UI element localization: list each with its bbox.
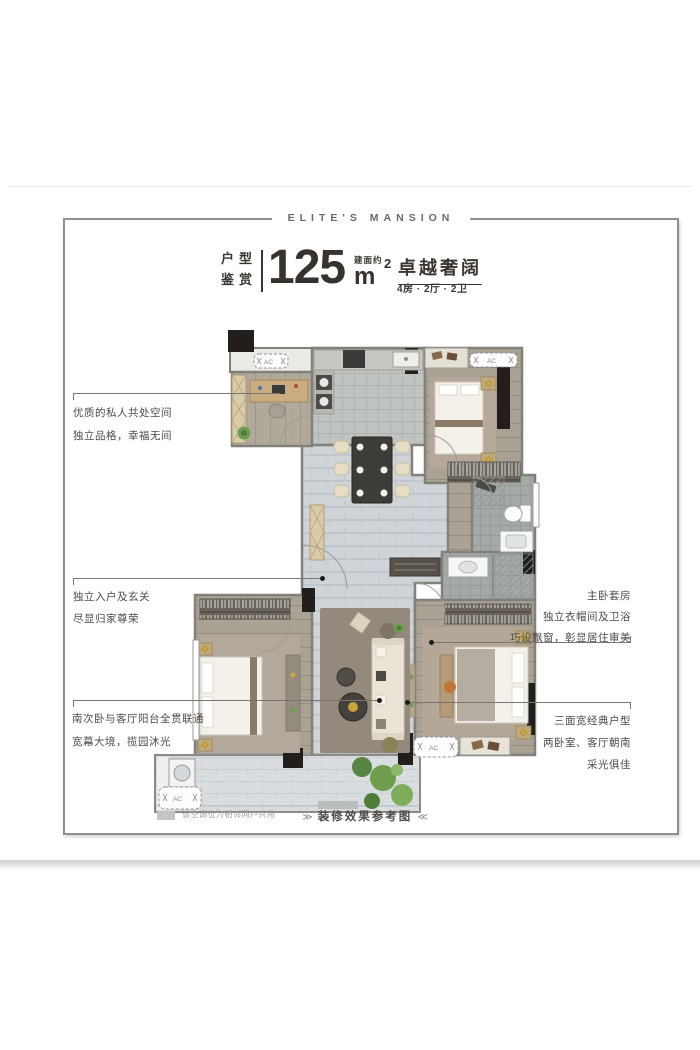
annotation-private-space: 优质的私人共处空间 独立品格，幸福无间 [73,402,172,448]
room-spec: 4房 · 2厅 · 2卫 [397,280,485,295]
area-superscript: 2 [384,256,391,271]
leader-tick-1 [73,393,74,400]
caption-text: 装修效果参考图 [318,811,413,823]
area-unit-stack: 建面约 m [354,254,388,287]
category-label: 户型 鉴赏 [221,248,257,290]
leader-line-1 [73,393,280,394]
legend-swatch [157,811,175,820]
leader-dot-3 [377,698,382,703]
leader-line-5 [408,702,631,703]
leader-dot-2 [320,576,325,581]
annotation-entry: 独立入户及玄关 尽显归家尊荣 [73,586,150,630]
caption-left-chevron: ≫ [302,812,312,823]
ac-unit-study: AC [254,354,288,368]
top-divider-line [8,186,692,187]
living-room [320,608,410,753]
svg-text:AC: AC [487,358,496,365]
leader-tick-2 [73,578,74,585]
render-caption: ≫ 装修效果参考图 ≪ [275,808,455,824]
header-divider [261,250,263,292]
category-line1: 户型 [221,248,257,269]
ac-unit-shared: AC [159,787,201,809]
brand-title: ELITE'S MANSION [272,212,471,224]
ac-unit-north: AC [470,353,517,367]
svg-text:AC: AC [264,359,273,366]
page: { "brand": "ELITE'S MANSION", "header": … [0,0,700,1050]
leader-tick-3 [73,700,74,707]
svg-text:AC: AC [173,796,182,803]
leader-dot-5 [405,700,410,705]
annotation-master-suite: 主卧套房 独立衣帽间及卫浴 巧设飘窗，彰显居住审美 [401,586,631,649]
area-number: 125 [268,247,345,289]
area-unit: m [354,267,388,287]
bottom-shadow-band [0,860,700,869]
leader-line-3 [73,700,380,701]
leader-tick-5 [630,702,631,709]
legend-note: 该空调位为相邻两户共用 [182,809,276,820]
category-line2: 鉴赏 [221,269,257,290]
leader-line-2 [73,578,323,579]
caption-right-chevron: ≪ [417,812,427,823]
annotation-south-bedroom: 南次卧与客厅阳台全贯联通 宽幕大境，揽园沐光 [72,708,204,754]
annotation-three-bay: 三面宽经典户型 两卧室、客厅朝南 采光俱佳 [401,710,631,776]
